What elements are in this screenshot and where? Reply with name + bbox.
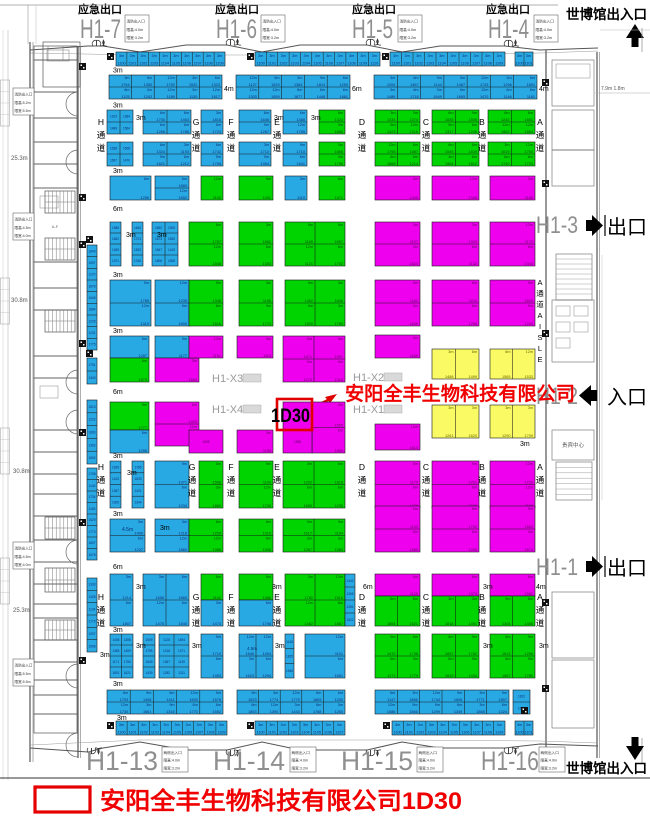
svg-text:6m: 6m — [472, 350, 477, 354]
svg-text:1125: 1125 — [410, 592, 418, 596]
svg-text:1586: 1586 — [112, 226, 119, 230]
svg-text:1344: 1344 — [134, 501, 141, 505]
svg-text:限宽:3.2m: 限宽:3.2m — [127, 35, 144, 40]
svg-text:3m: 3m — [413, 223, 418, 227]
svg-text:限高:5.2m: 限高:5.2m — [15, 100, 31, 105]
svg-text:1473: 1473 — [213, 622, 221, 626]
svg-text:1742: 1742 — [213, 150, 221, 154]
svg-text:1835: 1835 — [445, 118, 453, 122]
svg-text:A-F: A-F — [52, 224, 59, 229]
svg-text:3m: 3m — [258, 54, 263, 58]
svg-text:6m: 6m — [448, 635, 453, 639]
svg-text:9m: 9m — [320, 76, 325, 80]
svg-text:1121: 1121 — [305, 262, 313, 266]
svg-text:3m: 3m — [338, 281, 343, 285]
svg-text:1508: 1508 — [123, 147, 130, 151]
svg-text:1710: 1710 — [261, 150, 269, 154]
svg-text:3m: 3m — [113, 168, 123, 175]
svg-text:1690: 1690 — [179, 322, 187, 326]
svg-text:1108: 1108 — [484, 731, 492, 735]
svg-text:6m: 6m — [413, 575, 418, 579]
svg-text:1867: 1867 — [335, 622, 343, 626]
svg-text:1734: 1734 — [88, 495, 95, 499]
svg-text:H1-14: H1-14 — [213, 746, 285, 776]
svg-text:1374: 1374 — [410, 118, 418, 122]
svg-text:1505: 1505 — [469, 118, 477, 122]
svg-text:1259: 1259 — [213, 531, 221, 535]
svg-text:3m: 3m — [504, 143, 509, 147]
svg-text:12m: 12m — [180, 281, 187, 285]
svg-text:1806: 1806 — [155, 259, 162, 263]
svg-text:3m: 3m — [258, 723, 263, 727]
svg-text:1785: 1785 — [141, 299, 149, 303]
svg-text:限宽:4.0m: 限宽:4.0m — [15, 233, 31, 238]
svg-text:3m: 3m — [100, 652, 110, 659]
svg-text:1773: 1773 — [88, 530, 95, 534]
svg-text:3m: 3m — [472, 406, 477, 410]
svg-text:1864: 1864 — [525, 130, 533, 134]
svg-text:6m: 6m — [530, 76, 535, 80]
svg-text:1540: 1540 — [179, 622, 187, 626]
svg-text:12m: 12m — [157, 601, 164, 605]
svg-text:1194: 1194 — [335, 531, 343, 535]
svg-text:25.3m: 25.3m — [13, 608, 30, 614]
svg-text:6m: 6m — [413, 530, 418, 534]
svg-text:9m: 9m — [216, 155, 221, 159]
svg-text:1304: 1304 — [502, 622, 510, 626]
svg-text:1371: 1371 — [178, 649, 185, 653]
svg-text:1788: 1788 — [313, 710, 321, 714]
svg-text:3m: 3m — [506, 76, 511, 80]
svg-text:1868: 1868 — [387, 162, 395, 166]
svg-text:1448: 1448 — [317, 95, 325, 99]
svg-text:1130: 1130 — [189, 95, 197, 99]
svg-text:6m: 6m — [528, 597, 533, 601]
svg-text:3m: 3m — [130, 723, 135, 727]
svg-text:1242: 1242 — [501, 118, 509, 122]
svg-text:1552: 1552 — [213, 710, 221, 714]
svg-text:1777: 1777 — [139, 426, 147, 430]
svg-text:6m: 6m — [505, 350, 510, 354]
svg-text:6m: 6m — [413, 143, 418, 147]
svg-text:1619: 1619 — [501, 150, 509, 154]
svg-text:1812: 1812 — [518, 695, 525, 699]
svg-text:6m: 6m — [390, 691, 395, 695]
svg-text:12m: 12m — [526, 143, 533, 147]
svg-text:H1-3: H1-3 — [536, 212, 578, 239]
svg-text:3m: 3m — [474, 723, 479, 727]
svg-text:9m: 9m — [338, 337, 343, 341]
svg-text:3m: 3m — [479, 703, 484, 707]
svg-text:1309: 1309 — [112, 501, 119, 505]
svg-text:1824: 1824 — [410, 262, 418, 266]
svg-text:1104: 1104 — [161, 62, 169, 66]
svg-text:世博馆出入口: 世博馆出入口 — [566, 760, 647, 776]
svg-text:3m: 3m — [462, 54, 467, 58]
svg-text:12m: 12m — [411, 425, 418, 429]
svg-text:1107: 1107 — [335, 731, 343, 735]
svg-text:12m: 12m — [249, 88, 256, 92]
svg-text:1667: 1667 — [502, 674, 510, 678]
svg-text:1494: 1494 — [261, 162, 269, 166]
svg-text:3m: 3m — [266, 337, 271, 341]
svg-text:3m: 3m — [448, 155, 453, 159]
svg-text:1323: 1323 — [212, 83, 220, 87]
svg-text:1324: 1324 — [335, 118, 343, 122]
svg-text:1472: 1472 — [387, 652, 395, 656]
svg-text:1100: 1100 — [213, 196, 221, 200]
svg-text:1508: 1508 — [88, 644, 95, 648]
svg-text:1516: 1516 — [213, 322, 221, 326]
svg-text:3m: 3m — [526, 54, 531, 58]
svg-text:3m: 3m — [517, 54, 522, 58]
svg-text:6m: 6m — [215, 76, 220, 80]
svg-text:3m: 3m — [520, 441, 530, 448]
svg-text:6m: 6m — [142, 359, 147, 363]
svg-text:6m: 6m — [528, 111, 533, 115]
svg-text:1641: 1641 — [297, 162, 305, 166]
svg-text:6m: 6m — [472, 507, 477, 511]
svg-text:1235: 1235 — [335, 504, 343, 508]
svg-text:H1-7: H1-7 — [80, 14, 121, 44]
svg-text:4.5m: 4.5m — [122, 527, 133, 533]
svg-text:1849: 1849 — [88, 249, 95, 253]
svg-text:9m: 9m — [216, 281, 221, 285]
svg-text:1787: 1787 — [213, 240, 221, 244]
svg-text:H1-1: H1-1 — [536, 554, 578, 581]
svg-text:1104: 1104 — [439, 731, 447, 735]
svg-text:6m: 6m — [266, 520, 271, 524]
svg-text:1754: 1754 — [121, 83, 129, 87]
svg-text:9m: 9m — [505, 597, 510, 601]
svg-text:3m: 3m — [216, 111, 221, 115]
svg-text:6m: 6m — [266, 575, 271, 579]
svg-text:12m: 12m — [214, 177, 221, 181]
svg-text:3m: 3m — [315, 54, 320, 58]
svg-text:6m: 6m — [142, 337, 147, 341]
svg-text:1825: 1825 — [286, 655, 293, 659]
svg-text:1489: 1489 — [110, 127, 117, 131]
svg-text:3m: 3m — [416, 54, 421, 58]
svg-text:6m: 6m — [316, 691, 321, 695]
svg-text:3m: 3m — [141, 723, 146, 727]
svg-text:1105: 1105 — [449, 62, 457, 66]
svg-text:6m: 6m — [528, 575, 533, 579]
svg-text:1750: 1750 — [157, 118, 165, 122]
svg-text:6m: 6m — [192, 403, 197, 407]
svg-text:1171: 1171 — [387, 674, 395, 678]
svg-text:6m: 6m — [169, 691, 174, 695]
svg-text:1102: 1102 — [140, 731, 148, 735]
svg-text:12m: 12m — [433, 691, 440, 695]
svg-text:1891: 1891 — [527, 83, 535, 87]
svg-text:3m: 3m — [463, 723, 468, 727]
svg-text:1383: 1383 — [335, 548, 343, 552]
svg-text:9m: 9m — [266, 304, 271, 308]
svg-text:1145: 1145 — [286, 640, 293, 644]
svg-text:6m: 6m — [160, 123, 165, 127]
svg-text:1533: 1533 — [134, 248, 141, 252]
svg-text:1886: 1886 — [409, 698, 417, 702]
svg-text:12m: 12m — [336, 635, 343, 639]
svg-text:6m: 6m — [472, 123, 477, 127]
svg-text:6m: 6m — [504, 111, 509, 115]
svg-text:1559: 1559 — [271, 95, 279, 99]
svg-text:12m: 12m — [470, 177, 477, 181]
svg-text:9m: 9m — [169, 703, 174, 707]
svg-text:1522: 1522 — [346, 618, 353, 622]
svg-text:12m: 12m — [190, 425, 197, 429]
svg-text:6m: 6m — [216, 703, 221, 707]
svg-text:9m: 9m — [435, 703, 440, 707]
svg-text:3m: 3m — [119, 54, 124, 58]
svg-text:1350: 1350 — [144, 83, 152, 87]
svg-text:12m: 12m — [213, 88, 220, 92]
svg-text:6m: 6m — [138, 537, 143, 541]
svg-text:6m: 6m — [472, 281, 477, 285]
svg-text:6m: 6m — [274, 76, 279, 80]
svg-text:3m: 3m — [300, 177, 305, 181]
svg-text:1258: 1258 — [139, 449, 147, 453]
svg-text:1296: 1296 — [525, 652, 533, 656]
svg-text:6m: 6m — [307, 486, 312, 490]
svg-text:1100: 1100 — [515, 62, 523, 66]
svg-text:1324: 1324 — [157, 150, 165, 154]
svg-text:4m: 4m — [539, 86, 549, 93]
svg-text:1771: 1771 — [476, 698, 484, 702]
svg-text:消防出入口: 消防出入口 — [15, 546, 33, 551]
svg-text:12m: 12m — [526, 462, 533, 466]
svg-text:3m: 3m — [303, 54, 308, 58]
svg-text:1299: 1299 — [432, 710, 440, 714]
svg-text:1779: 1779 — [410, 674, 418, 678]
svg-text:限宽:3.2m: 限宽:3.2m — [419, 765, 436, 770]
svg-text:9m: 9m — [472, 462, 477, 466]
svg-text:1261: 1261 — [445, 434, 453, 438]
svg-text:1419: 1419 — [168, 248, 175, 252]
svg-text:1665: 1665 — [457, 95, 465, 99]
svg-text:1270: 1270 — [304, 378, 312, 382]
svg-text:1462: 1462 — [305, 622, 313, 626]
svg-text:3m: 3m — [497, 54, 502, 58]
svg-text:1576: 1576 — [213, 698, 221, 702]
svg-text:3m: 3m — [393, 54, 398, 58]
svg-text:1752: 1752 — [469, 525, 477, 529]
svg-text:3m: 3m — [460, 76, 465, 80]
svg-text:1353: 1353 — [263, 262, 271, 266]
svg-text:9m: 9m — [216, 635, 221, 639]
svg-text:3m: 3m — [157, 232, 167, 239]
svg-text:1568: 1568 — [213, 480, 221, 484]
svg-text:3m: 3m — [292, 54, 297, 58]
svg-text:1597: 1597 — [335, 355, 343, 359]
svg-text:1316: 1316 — [410, 130, 418, 134]
svg-text:9m: 9m — [160, 155, 165, 159]
svg-text:1853: 1853 — [248, 710, 256, 714]
svg-text:1453: 1453 — [213, 674, 221, 678]
svg-text:6m: 6m — [338, 462, 343, 466]
svg-text:1529: 1529 — [88, 518, 95, 522]
svg-text:12m: 12m — [247, 635, 254, 639]
svg-text:3m: 3m — [474, 54, 479, 58]
svg-text:H1-X3: H1-X3 — [212, 373, 243, 385]
svg-text:1651: 1651 — [525, 118, 533, 122]
svg-text:9m: 9m — [266, 462, 271, 466]
svg-text:1533: 1533 — [525, 375, 533, 379]
svg-text:1211: 1211 — [469, 299, 477, 303]
svg-text:6m: 6m — [193, 703, 198, 707]
svg-text:9m: 9m — [472, 111, 477, 115]
svg-text:限高:4.0m: 限高:4.0m — [292, 758, 309, 763]
svg-text:3m: 3m — [119, 723, 124, 727]
svg-text:4.5m: 4.5m — [247, 646, 257, 651]
svg-text:1109: 1109 — [495, 731, 503, 735]
svg-text:3m: 3m — [326, 54, 331, 58]
svg-text:6m: 6m — [413, 155, 418, 159]
svg-text:3m: 3m — [136, 643, 146, 650]
svg-text:1139: 1139 — [178, 660, 185, 664]
svg-text:1266: 1266 — [157, 130, 165, 134]
svg-text:两侧出入口: 两侧出入口 — [164, 750, 183, 755]
svg-text:1107: 1107 — [472, 62, 480, 66]
svg-text:1650: 1650 — [304, 504, 312, 508]
svg-text:6m: 6m — [300, 111, 305, 115]
svg-text:3m: 3m — [406, 723, 411, 727]
svg-text:3m: 3m — [307, 462, 312, 466]
svg-text:1774: 1774 — [263, 322, 271, 326]
svg-text:9m: 9m — [457, 691, 462, 695]
svg-text:1649: 1649 — [433, 95, 441, 99]
svg-text:1774: 1774 — [270, 698, 278, 702]
svg-text:1246: 1246 — [469, 130, 477, 134]
svg-text:3m: 3m — [448, 597, 453, 601]
svg-text:1101: 1101 — [268, 731, 276, 735]
svg-text:1509: 1509 — [145, 638, 152, 642]
svg-text:1775: 1775 — [88, 343, 95, 347]
svg-text:1619: 1619 — [445, 674, 453, 678]
svg-text:1423: 1423 — [387, 130, 395, 134]
svg-text:1710: 1710 — [297, 150, 305, 154]
svg-text:3m: 3m — [184, 54, 189, 58]
svg-text:3m: 3m — [413, 657, 418, 661]
svg-text:1259: 1259 — [340, 83, 348, 87]
svg-text:1845: 1845 — [410, 322, 418, 326]
svg-text:6m: 6m — [528, 155, 533, 159]
svg-text:1109: 1109 — [263, 480, 271, 484]
svg-text:1211: 1211 — [178, 671, 185, 675]
svg-text:1730: 1730 — [120, 710, 128, 714]
svg-text:12m: 12m — [502, 123, 509, 127]
svg-text:限高:4.0m: 限高:4.0m — [419, 758, 436, 763]
svg-text:1529: 1529 — [271, 83, 279, 87]
svg-text:3m: 3m — [174, 723, 179, 727]
svg-text:1710: 1710 — [213, 652, 221, 656]
svg-text:3m: 3m — [113, 453, 123, 460]
svg-text:3m: 3m — [160, 525, 170, 532]
svg-text:1147: 1147 — [387, 698, 395, 702]
svg-text:限宽:3.2m: 限宽:3.2m — [541, 765, 558, 770]
svg-text:1102: 1102 — [416, 731, 424, 735]
svg-text:3m: 3m — [314, 723, 319, 727]
svg-text:1100: 1100 — [392, 62, 400, 66]
svg-text:1193: 1193 — [181, 150, 189, 154]
svg-text:6m: 6m — [413, 76, 418, 80]
svg-text:3m: 3m — [505, 406, 510, 410]
svg-text:1718: 1718 — [410, 95, 418, 99]
svg-text:1789: 1789 — [335, 322, 343, 326]
svg-text:1177: 1177 — [179, 354, 187, 358]
svg-text:1860: 1860 — [179, 548, 187, 552]
svg-text:6m: 6m — [338, 691, 343, 695]
svg-text:1102: 1102 — [279, 62, 287, 66]
svg-text:1862: 1862 — [501, 130, 509, 134]
svg-text:3m: 3m — [413, 245, 418, 249]
svg-text:1439: 1439 — [145, 671, 152, 675]
svg-text:30.8m: 30.8m — [11, 298, 28, 304]
svg-text:1235: 1235 — [179, 299, 187, 303]
svg-text:12m: 12m — [306, 601, 313, 605]
svg-text:1623: 1623 — [246, 674, 254, 678]
svg-text:3m: 3m — [182, 520, 187, 524]
svg-text:1140: 1140 — [89, 484, 96, 488]
svg-text:1889: 1889 — [410, 548, 418, 552]
svg-text:1172: 1172 — [525, 240, 533, 244]
svg-text:6m: 6m — [184, 123, 189, 127]
svg-text:1269: 1269 — [112, 248, 119, 252]
svg-text:6m: 6m — [338, 223, 343, 227]
svg-text:3m: 3m — [338, 54, 343, 58]
svg-text:1755: 1755 — [297, 130, 305, 134]
svg-text:3m: 3m — [311, 115, 321, 122]
svg-text:3m: 3m — [113, 328, 123, 335]
svg-text:1837: 1837 — [445, 652, 453, 656]
svg-text:1546: 1546 — [286, 669, 293, 673]
svg-text:3m: 3m — [472, 597, 477, 601]
svg-text:9m: 9m — [472, 635, 477, 639]
svg-text:1508: 1508 — [168, 259, 175, 263]
svg-text:1105: 1105 — [450, 731, 458, 735]
svg-text:12m: 12m — [190, 691, 197, 695]
svg-text:1103: 1103 — [427, 731, 435, 735]
svg-text:1385: 1385 — [112, 649, 119, 653]
svg-text:3m: 3m — [307, 537, 312, 541]
svg-text:6m: 6m — [216, 657, 221, 661]
svg-text:9m: 9m — [300, 143, 305, 147]
svg-text:1614: 1614 — [410, 446, 418, 450]
svg-text:3m: 3m — [269, 723, 274, 727]
svg-text:12m: 12m — [481, 88, 488, 92]
svg-text:1791: 1791 — [88, 363, 95, 367]
svg-text:1617: 1617 — [212, 95, 220, 99]
svg-text:3m: 3m — [192, 88, 197, 92]
svg-text:两侧出入口: 两侧出入口 — [541, 750, 560, 755]
svg-text:限高:4.0m: 限高:4.0m — [127, 27, 144, 32]
svg-text:3m: 3m — [437, 88, 442, 92]
svg-text:1664: 1664 — [525, 525, 533, 529]
svg-text:9m: 9m — [251, 691, 256, 695]
svg-text:6m: 6m — [472, 155, 477, 159]
svg-text:1101: 1101 — [335, 652, 343, 656]
svg-text:1305: 1305 — [168, 226, 175, 230]
svg-text:1333: 1333 — [88, 583, 95, 587]
svg-text:6m: 6m — [390, 155, 395, 159]
svg-text:6m: 6m — [413, 635, 418, 639]
svg-text:1385: 1385 — [124, 638, 131, 642]
svg-text:1296: 1296 — [503, 83, 511, 87]
svg-text:两侧出入口: 两侧出入口 — [419, 750, 438, 755]
svg-text:1548: 1548 — [213, 262, 221, 266]
svg-text:1324: 1324 — [499, 710, 507, 714]
